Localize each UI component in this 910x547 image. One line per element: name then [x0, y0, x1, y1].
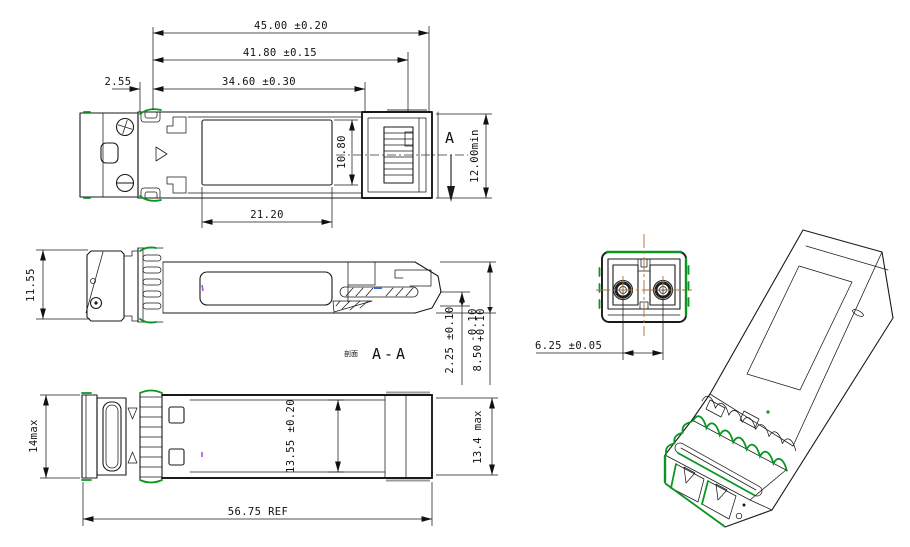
front-bezel: [80, 112, 138, 198]
screw-top-icon: [116, 118, 134, 136]
bottom-dim-ref: 56.75 REF: [83, 482, 432, 526]
dim-label-width: 21.20: [250, 209, 284, 221]
dim-housing-length: 41.80 ±0.15: [243, 47, 317, 59]
section-title-prefix: 剖面: [344, 349, 358, 358]
emi-fingers-top: [140, 109, 161, 122]
bottom-view: 14max: [28, 391, 498, 527]
iso-green-dot: [766, 410, 769, 413]
bail-latch: [86, 251, 138, 321]
label-recess-side: [200, 272, 332, 305]
section-letter: A: [445, 129, 454, 147]
iso-top-hole-2: [740, 411, 759, 428]
dim-label-height: 10.80: [336, 135, 348, 169]
bottom-dims-right: 13.55 ±0.20 13.4 max: [285, 398, 498, 475]
side-dims-right: 2.25 ±0.10 8.50 +0.10 -0.10: [436, 262, 496, 385]
section-arrow-A: A: [445, 129, 455, 202]
marker-triangle-top: [128, 408, 137, 419]
bottom-body: [162, 393, 432, 481]
iso-label-recess: [747, 266, 852, 390]
iso-side-slot: [852, 308, 865, 318]
svg-text:6.25 ±0.05: 6.25 ±0.05: [535, 340, 602, 352]
back-chamfer: [806, 246, 888, 270]
svg-text:13.4 max: 13.4 max: [472, 410, 484, 464]
svg-text:11.55: 11.55: [25, 268, 37, 302]
svg-text:13.55 ±0.20: 13.55 ±0.20: [285, 399, 297, 473]
emi-collar-bottom: [140, 391, 162, 483]
stray-mark-purple: [202, 285, 203, 291]
section-title-name: A-A: [372, 345, 408, 363]
front-centerlines: [596, 234, 692, 336]
dim-min-length: 12.00min: [469, 129, 481, 183]
iso-lc-pocket-1: [671, 464, 704, 502]
contact-fingers: [384, 133, 413, 175]
sfp-transceiver-drawing: A 45.00 ±0.20 41.80 ±0.15 34.60 ±0.30 2.…: [0, 0, 910, 547]
bottom-hole-1: [169, 407, 184, 423]
side-view-section: 11.55: [25, 247, 496, 385]
iso-top-face: [706, 266, 852, 428]
emi-fingers-bottom: [140, 188, 161, 201]
engineering-drawing-sheet: A 45.00 ±0.20 41.80 ±0.15 34.60 ±0.30 2.…: [0, 0, 910, 547]
iso-silhouette: [665, 230, 893, 527]
top-view-dimensions: 45.00 ±0.20 41.80 ±0.15 34.60 ±0.30 2.55…: [105, 20, 492, 228]
iso-lc-block: [665, 443, 786, 526]
section-arrowhead: [447, 186, 455, 202]
emi-collar-side: [138, 247, 163, 322]
dim-pcb-height: 2.25 ±0.10: [444, 306, 456, 373]
front-view: 6.25 ±0.05: [535, 234, 692, 360]
side-dim-height: 11.55: [25, 250, 90, 319]
dim-module-height-tol-minus: -0.10: [467, 308, 479, 342]
edge-connector: [362, 110, 438, 198]
latch-windows: [156, 117, 186, 193]
label-area: [202, 120, 332, 185]
dim-body-length: 34.60 ±0.30: [222, 76, 296, 88]
svg-text:56.75 REF: 56.75 REF: [228, 506, 289, 518]
isometric-view: [665, 230, 893, 527]
bail-handle-bottom: [82, 393, 137, 480]
dim-module-height: 8.50: [472, 345, 484, 372]
svg-text:14max: 14max: [28, 419, 40, 453]
section-hatch: [346, 288, 413, 296]
dim-overall-length: 45.00 ±0.20: [254, 20, 328, 32]
bottom-dim-left: 14max: [28, 395, 80, 478]
iso-top-hole-1: [706, 400, 725, 417]
wedge-hatch: [336, 301, 368, 310]
orientation-triangle: [156, 147, 167, 161]
dim-collar-offset: 2.55: [105, 76, 132, 88]
bezel-tab: [101, 143, 118, 163]
bottom-hole-2: [169, 449, 184, 465]
top-view: A 45.00 ±0.20 41.80 ±0.15 34.60 ±0.30 2.…: [80, 20, 492, 228]
side-nose: [333, 262, 441, 313]
screw-bottom-icon: [117, 175, 134, 192]
marker-triangle-bottom: [128, 452, 137, 463]
section-title: 剖面 A-A: [344, 345, 408, 363]
